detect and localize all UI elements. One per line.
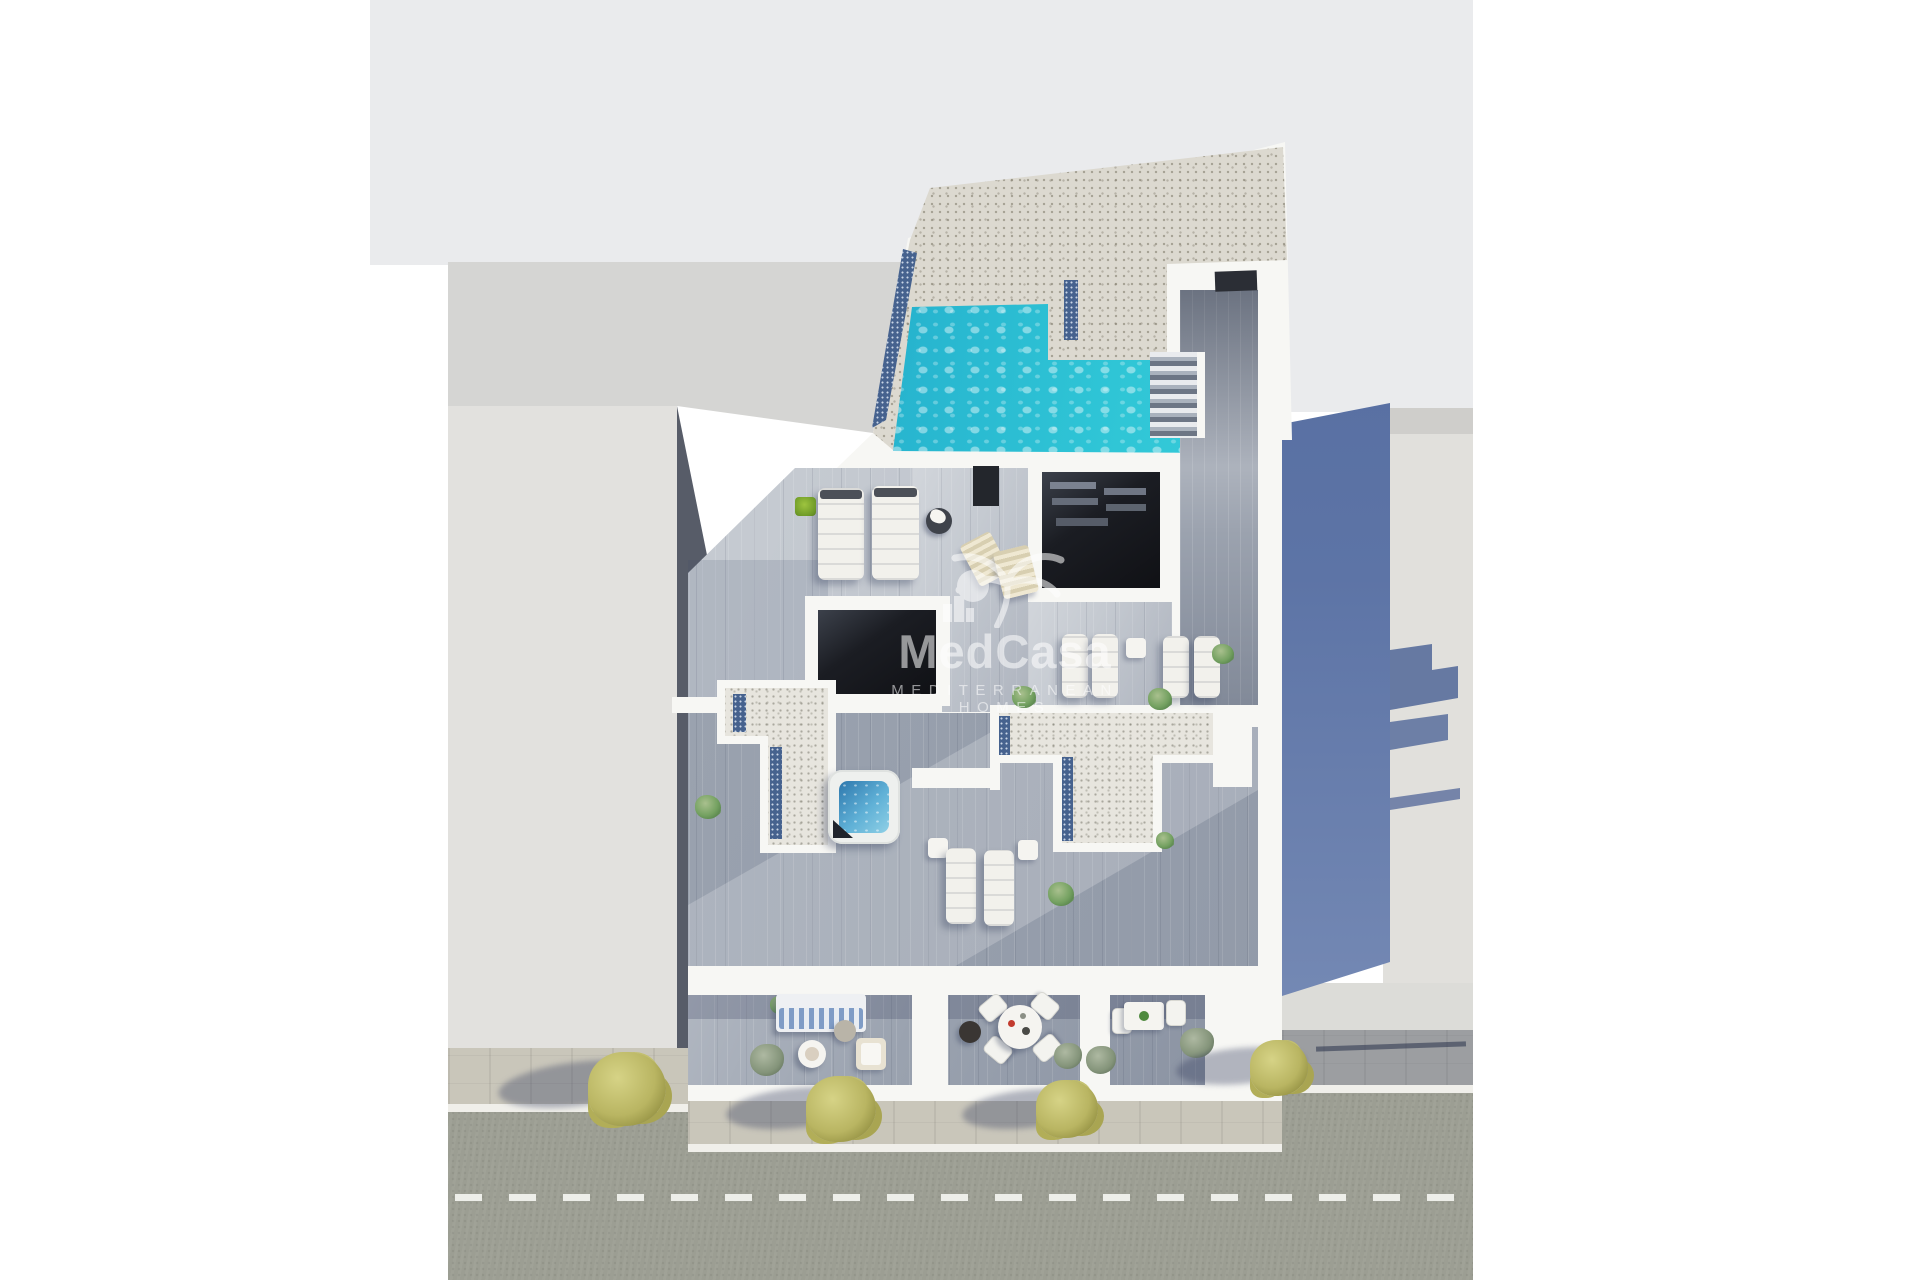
curb-right: [1282, 1085, 1473, 1094]
jacuzzi-water: [839, 781, 889, 833]
sun-lounger: [984, 850, 1014, 926]
aerial-render-scene: MedCasa MEDITERRANEAN HOMES: [0, 0, 1920, 1280]
road-center-dashes: [455, 1194, 1467, 1201]
potted-plant: [695, 795, 721, 819]
skylight-t-left-a: [733, 694, 746, 732]
dark-side-table: [959, 1021, 981, 1043]
lounger-headrest: [874, 488, 917, 497]
left-neighbor-roof: [448, 406, 677, 1048]
watermark-brand: MedCasa: [840, 624, 1170, 679]
plate-red: [1008, 1020, 1015, 1027]
side-table: [928, 838, 948, 858]
ceiling-beam: [1052, 498, 1098, 505]
roof-stairs: [1150, 352, 1197, 438]
side-table: [1018, 840, 1038, 860]
potted-plant: [1048, 882, 1074, 906]
terrace-glass-door: [973, 466, 999, 506]
table-plant: [1139, 1011, 1149, 1021]
dining-table-round: [998, 1005, 1042, 1049]
skylight-t-left-b: [770, 747, 782, 839]
right-neighbor-facade: [1383, 408, 1473, 434]
balcony-divider-2: [1080, 966, 1110, 1101]
plate-dark: [1022, 1027, 1030, 1035]
ceiling-beam: [1050, 482, 1096, 489]
chair-cushion: [861, 1043, 881, 1065]
skylight-strip-top: [1064, 280, 1078, 340]
bistro-table: [1124, 1002, 1164, 1030]
coffee-table-round: [798, 1040, 826, 1068]
skylight-t-right-a: [999, 716, 1010, 755]
ceiling-beam: [1106, 504, 1146, 511]
bistro-chair: [1166, 1000, 1186, 1026]
watermark-tagline: MEDITERRANEAN HOMES: [840, 682, 1170, 716]
ceiling-beam: [1104, 488, 1146, 495]
planter-box: [795, 497, 816, 516]
curb-center: [688, 1144, 1282, 1153]
ceiling-beam: [1056, 518, 1108, 526]
stairs-railing: [1197, 352, 1205, 438]
balcony-divider-1: [912, 966, 948, 1101]
wall-block-east: [1213, 713, 1252, 787]
plate-small: [1020, 1013, 1026, 1019]
sidewalk-right-shadow: [1282, 1030, 1473, 1092]
skylight-t-right-b: [1062, 757, 1073, 841]
potted-plant: [1212, 644, 1234, 664]
lounger-headrest: [820, 490, 862, 499]
ground-backdrop-right: [1285, 262, 1473, 412]
balcony-back-wall: [688, 966, 1262, 996]
wicker-chair: [834, 1020, 856, 1042]
table-tray: [805, 1047, 819, 1061]
potted-plant: [1156, 832, 1174, 849]
right-neighbor-base-wall: [1282, 983, 1473, 1030]
partition-wall-stub-h: [912, 768, 996, 788]
palm-tree-city-icon: [935, 548, 1075, 628]
lounge-chair: [856, 1038, 886, 1070]
sun-lounger: [946, 848, 976, 924]
corridor-door-lintel: [1215, 270, 1258, 291]
watermark: MedCasa MEDITERRANEAN HOMES: [840, 548, 1170, 718]
